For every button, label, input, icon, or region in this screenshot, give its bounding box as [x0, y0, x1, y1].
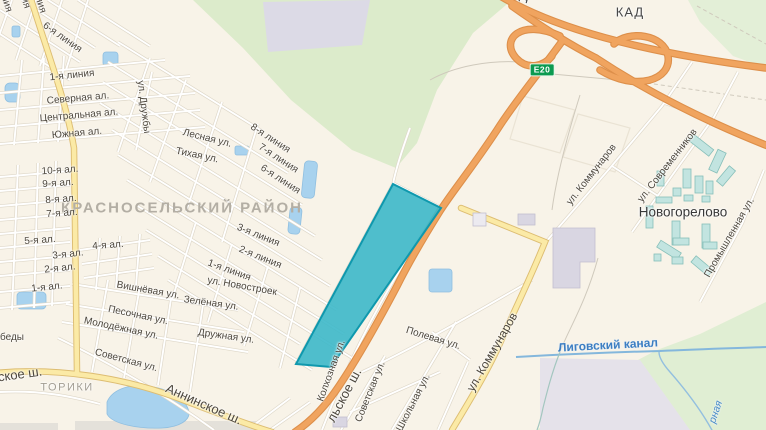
map-canvas[interactable]: КРАСНОСЕЛЬСКИЙ РАЙОН 6-я линия 1-я линия… [0, 0, 766, 430]
e20-route-badge: Е20 [530, 63, 555, 76]
map-graphics [0, 0, 766, 430]
